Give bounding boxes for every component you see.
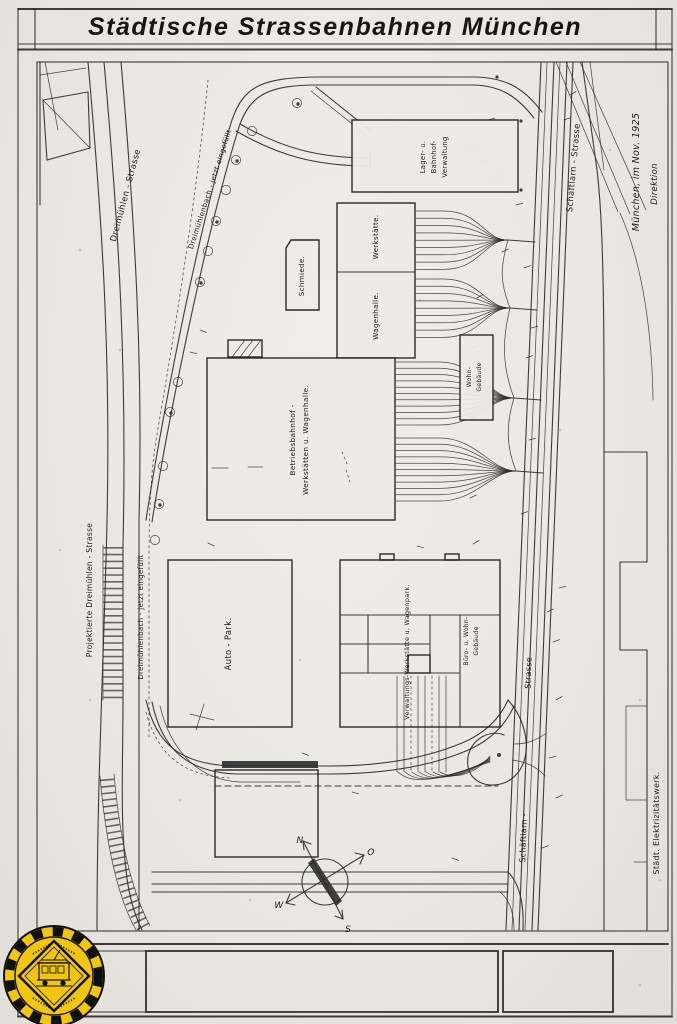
label-buero-2: Gebäude	[473, 626, 480, 655]
label-verwaltung-3: Verwaltung	[441, 136, 449, 177]
plan-scan-page: Städtische Strassenbahnen München	[0, 0, 677, 1024]
label-wohngebaeude-2: Gebäude	[476, 362, 483, 391]
neighbour-block-topleft	[40, 62, 90, 205]
label-elektrizitaetswerk: Städt. Elektrizitätswerk.	[652, 771, 661, 874]
compass-rose: N O S W	[274, 836, 374, 935]
plan-title: Städtische Strassenbahnen München	[88, 13, 582, 41]
label-projektierte-strasse: Projektierte Dreimühlen - Strasse	[85, 523, 94, 658]
compass-o-label: O	[367, 848, 374, 858]
label-wohngebaeude-1: Wohn-	[466, 367, 473, 388]
label-buero-1: Büro- u. Wohn-	[463, 617, 470, 666]
label-schmiede: Schmiede.	[297, 256, 306, 296]
label-betriebsbahnhof-1: Betriebsbahnhof -	[288, 404, 297, 475]
label-werkstaette: Werkstätte.	[371, 215, 380, 260]
title-block-right-box	[503, 951, 613, 1012]
label-verwaltung-1: Lager- u.	[419, 141, 427, 174]
label-wagenhalle: Wagenhalle.	[371, 292, 380, 340]
label-schaeftlarn-top: Schäftlarn - Strasse	[565, 123, 583, 213]
title-block-main-box	[146, 951, 498, 1012]
label-werkstatt-wagenpark: Verwaltungs-Werkstätte u. Wagenpark.	[403, 584, 411, 719]
label-schaeftlarn-bottom: Schäftlarn -	[518, 813, 529, 863]
label-direktion: Direktion	[650, 163, 660, 205]
bottom-tracks	[146, 700, 545, 930]
label-autopark: Auto - Park.	[224, 618, 234, 671]
label-betriebsbahnhof-2: Werkstätten u. Wagenhalle.	[301, 385, 310, 495]
tram-museum-badge-icon	[4, 926, 104, 1024]
label-bach-left: Dreimühlenbach - jetzt eingefüllt	[137, 554, 145, 679]
site-plan-drawing: Städtische Strassenbahnen München	[0, 0, 677, 1024]
compass-n-label: N	[296, 836, 303, 846]
elektrizitaetswerk-outline	[604, 452, 647, 930]
label-verwaltung-2: Bahnhof-	[430, 140, 438, 173]
label-dreimuehlen-strasse: Dreimühlen - Strasse	[109, 148, 143, 243]
label-schaeftlarn-bottom-str: Strasse	[523, 657, 533, 689]
title-block	[60, 944, 668, 1012]
label-place-date: München, im Nov. 1925	[631, 113, 642, 232]
compass-w-label: W	[274, 901, 284, 911]
building-small-hut	[228, 340, 262, 357]
compass-s-label: S	[345, 925, 351, 935]
